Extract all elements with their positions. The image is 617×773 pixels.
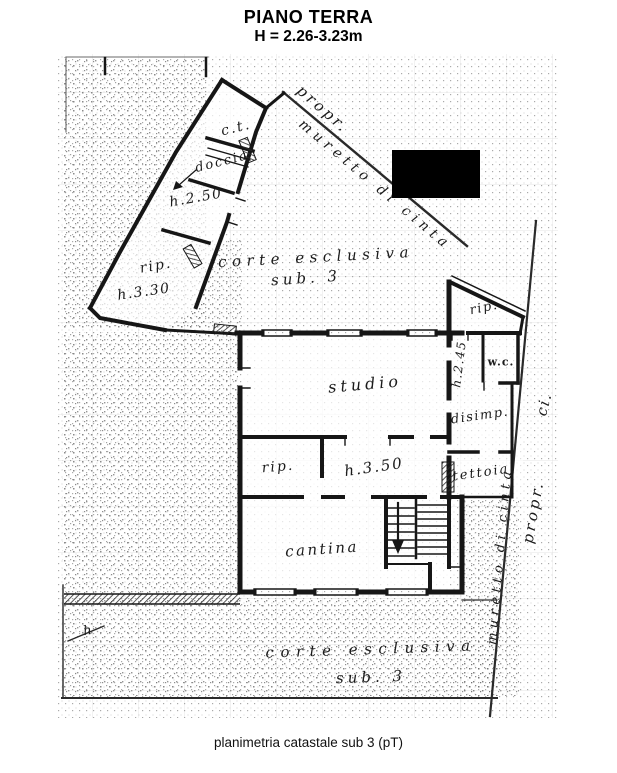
retaining-wall: [64, 594, 240, 604]
scan-texture: [58, 54, 558, 718]
redaction-box: [392, 150, 480, 198]
plan-label-wc: w.c.: [488, 356, 515, 369]
caption: planimetria catastale sub 3 (pT): [0, 735, 617, 750]
plan-label-rip-mid: rip.: [261, 458, 295, 477]
plan-label-corte-bot-line2: sub. 3: [336, 667, 407, 687]
floor-plan: c.t.docciah.2.50rip.h.3.30corte esclusiv…: [0, 0, 617, 773]
page: PIANO TERRA H = 2.26-3.23m: [0, 0, 617, 773]
